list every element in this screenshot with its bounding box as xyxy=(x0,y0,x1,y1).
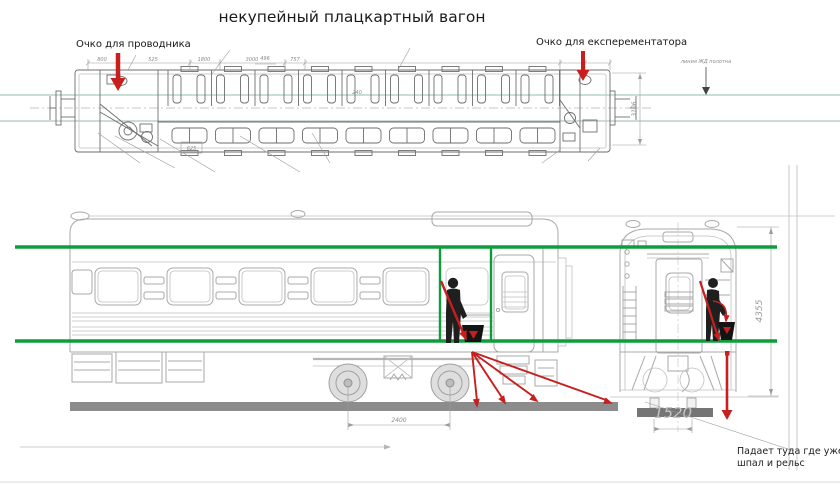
end-door xyxy=(656,259,702,353)
track-line-arrow-head xyxy=(702,87,710,95)
track-line-annotation: линия ЖД полотна xyxy=(680,59,731,95)
left-oko-arrow-head xyxy=(111,78,126,91)
page-title: некупейный плацкартный вагон xyxy=(219,8,486,26)
track-line-label: линия ЖД полотна xyxy=(680,59,731,65)
dim-plan-2: 525 xyxy=(148,57,158,63)
dim-3106-label: 3106 xyxy=(631,101,638,116)
plan-left-toilet xyxy=(100,75,158,146)
spill-fan xyxy=(472,352,606,401)
left-oko-label: Очко для проводника xyxy=(76,39,191,50)
dim-plan-496: 496 xyxy=(260,56,270,62)
fall-note-line1: Падает туда где уже нет xyxy=(737,446,840,457)
ground-platform xyxy=(70,402,618,411)
plan-body-outline xyxy=(75,70,610,152)
right-oko-label: Очко для експерементатора xyxy=(536,37,687,48)
dim-plan-5: 757 xyxy=(290,57,300,63)
dim-ticks xyxy=(86,59,612,70)
dim-car-height: 4355 xyxy=(737,227,779,396)
end-person-group xyxy=(700,278,735,343)
dim-plan-625: 625 xyxy=(187,146,197,152)
bogie xyxy=(313,356,480,402)
side-windows xyxy=(72,268,488,305)
dim-plan-3: 1800 xyxy=(198,57,211,63)
battery-boxes xyxy=(72,352,204,383)
dim-2400-label: 2400 xyxy=(391,417,406,424)
plan-leaders xyxy=(98,48,600,172)
plan-compartments xyxy=(168,67,560,156)
end-roof-vent-2 xyxy=(705,221,719,228)
fall-note-line2: шпал и рельс xyxy=(737,458,805,469)
dim-plan-1: 800 xyxy=(97,57,107,63)
fall-note-leader xyxy=(645,402,794,451)
side-door xyxy=(494,255,534,352)
end-person-head xyxy=(708,278,718,288)
side-person-group xyxy=(441,278,484,343)
end-view: 1520 xyxy=(610,221,778,434)
side-car-end xyxy=(543,248,572,352)
dim-plan-height: 3106 xyxy=(612,73,646,145)
length-dim-arrow xyxy=(384,445,391,450)
track-guide-lines xyxy=(0,95,840,121)
side-person-head xyxy=(448,278,458,288)
right-guide-lines xyxy=(789,165,797,470)
end-roof-vent-1 xyxy=(626,221,640,228)
wagon-diagram-page: 800 525 1800 3000 757 496 240 625 3106 xyxy=(0,0,840,485)
left-oko-annotation: Очко для проводника xyxy=(76,39,191,91)
dim-plan-4: 3000 xyxy=(246,57,259,63)
dim-plan-240: 240 xyxy=(352,90,362,96)
wagon-diagram: 800 525 1800 3000 757 496 240 625 3106 xyxy=(0,0,840,485)
dim-4355-label: 4355 xyxy=(755,299,765,322)
side-skirt-ribs xyxy=(72,313,493,335)
roof-vent-2 xyxy=(291,211,305,218)
